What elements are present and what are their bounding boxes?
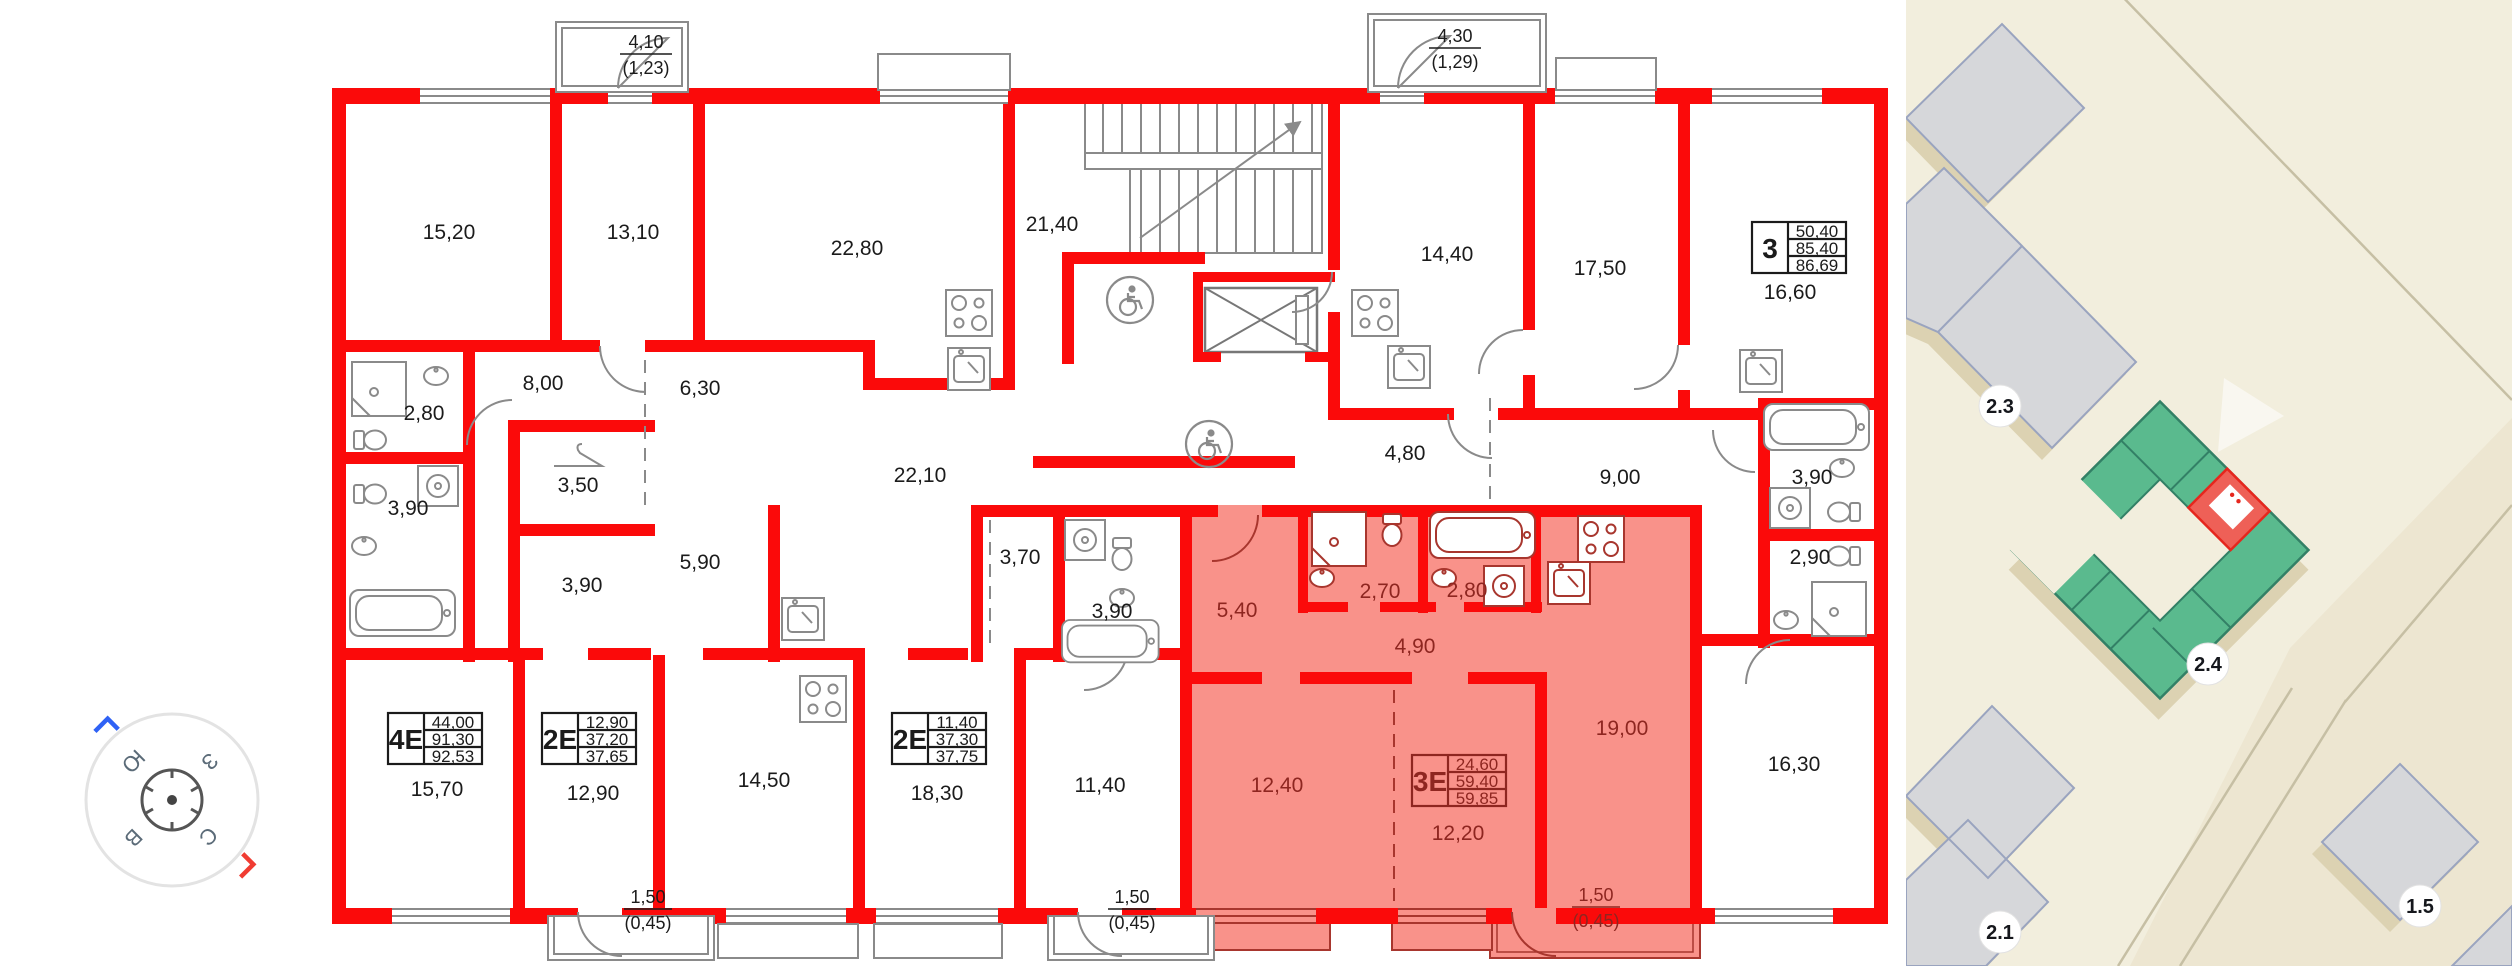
toilet-icon (1383, 514, 1402, 546)
sink-icon (1774, 611, 1798, 629)
kitchen-sink-icon (1388, 346, 1430, 388)
svg-text:86,69: 86,69 (1796, 256, 1839, 275)
svg-text:4,10: 4,10 (628, 32, 663, 52)
room-area-label: 3,90 (1792, 466, 1833, 489)
floor-plan: 15,20 13,10 22,80 21,40 14,40 17,50 16,6… (332, 14, 1888, 960)
room-area-label: 16,30 (1768, 753, 1821, 776)
room-area-label: 6,30 (680, 377, 721, 400)
room-area-label: 12,90 (567, 782, 620, 805)
sink-icon (424, 367, 448, 385)
room-area-label: 11,40 (1075, 774, 1126, 797)
bathtub-icon (1764, 404, 1869, 450)
shower-icon (1812, 582, 1866, 636)
kitchen-sink-icon (782, 598, 824, 640)
svg-text:2.1: 2.1 (1986, 922, 2014, 944)
room-area-label: 2,90 (1790, 546, 1831, 569)
apartment-info-4e[interactable]: 4Е 44,00 91,30 92,53 (388, 713, 482, 766)
map-badge-2-3[interactable]: 2.3 (1979, 385, 2021, 427)
apartment-info-2e-a[interactable]: 2Е 12,90 37,20 37,65 (542, 713, 636, 766)
elevator (1205, 288, 1317, 352)
svg-text:92,53: 92,53 (432, 747, 475, 766)
room-area-label: 9,00 (1600, 466, 1641, 489)
sink-icon (352, 537, 376, 555)
toilet-icon (354, 431, 386, 450)
room-area-label: 2,80 (1447, 579, 1488, 602)
bathtub-icon (350, 590, 455, 636)
floorplan-viewer: 15,20 13,10 22,80 21,40 14,40 17,50 16,6… (0, 0, 2512, 966)
svg-text:1,50: 1,50 (630, 887, 665, 907)
room-area-label: 14,50 (738, 769, 791, 792)
room-area-label: 2,80 (404, 402, 445, 425)
stove-icon (946, 290, 992, 336)
room-area-label: 17,50 (1574, 257, 1627, 280)
shower-icon (352, 362, 406, 416)
toilet-icon (1828, 547, 1860, 566)
toilet-icon (1828, 503, 1860, 522)
room-area-label: 13,10 (607, 221, 660, 244)
room-area-label: 22,10 (894, 464, 947, 487)
svg-text:59,85: 59,85 (1456, 789, 1499, 808)
room-area-label: 5,90 (680, 551, 721, 574)
washing-machine-icon (1770, 488, 1810, 528)
room-area-label: 4,90 (1395, 635, 1436, 658)
stove-icon (800, 676, 846, 722)
room-area-label: 3,50 (558, 474, 599, 497)
svg-text:(0,45): (0,45) (1108, 913, 1155, 933)
room-area-label: 3,90 (1092, 600, 1133, 623)
svg-text:3: 3 (1762, 233, 1778, 264)
sink-icon (1830, 459, 1854, 477)
room-area-label: 22,80 (831, 237, 884, 260)
room-area-label: 18,30 (911, 782, 964, 805)
kitchen-sink-icon (1740, 350, 1782, 392)
apartment-info-3e[interactable]: 3Е 24,60 59,40 59,85 (1412, 755, 1506, 808)
svg-text:2.3: 2.3 (1986, 396, 2014, 418)
kitchen-sink-icon (948, 348, 990, 390)
wheelchair-icon (1107, 277, 1153, 323)
svg-text:4Е: 4Е (389, 724, 423, 755)
room-area-label: 2,70 (1360, 580, 1401, 603)
room-area-label: 21,40 (1026, 213, 1079, 236)
svg-text:1.5: 1.5 (2406, 896, 2434, 918)
svg-text:(0,45): (0,45) (624, 913, 671, 933)
shower-icon (1312, 512, 1366, 566)
bathtub-icon (1430, 512, 1535, 558)
room-area-label: 3,90 (388, 497, 429, 520)
room-area-label: 12,40 (1251, 774, 1304, 797)
room-area-label: 19,00 (1596, 717, 1649, 740)
toilet-icon (354, 485, 386, 504)
map-badge-2-1[interactable]: 2.1 (1979, 911, 2021, 953)
room-area-label: 15,20 (423, 221, 476, 244)
room-area-label: 4,80 (1385, 442, 1426, 465)
room-area-label: 15,70 (411, 778, 464, 801)
stove-icon (1352, 290, 1398, 336)
svg-text:2Е: 2Е (543, 724, 577, 755)
svg-text:(1,23): (1,23) (622, 58, 669, 78)
svg-text:37,65: 37,65 (586, 747, 629, 766)
site-map: 2.3 2.4 2.1 1.5 (1896, 0, 2512, 966)
svg-text:2.4: 2.4 (2194, 654, 2223, 676)
room-area-label: 3,70 (1000, 546, 1041, 569)
room-area-label: 8,00 (523, 372, 564, 395)
washing-machine-icon (1065, 520, 1105, 560)
svg-text:4,30: 4,30 (1437, 26, 1472, 46)
room-area-label: 3,90 (562, 574, 603, 597)
staircase (1085, 97, 1322, 253)
svg-text:37,75: 37,75 (936, 747, 979, 766)
room-area-label: 5,40 (1217, 599, 1258, 622)
hanger-icon (554, 444, 602, 466)
svg-text:(1,29): (1,29) (1431, 52, 1478, 72)
bathtub-icon (1062, 620, 1159, 662)
room-area-label: 16,60 (1764, 281, 1817, 304)
room-area-label: 14,40 (1421, 243, 1474, 266)
svg-text:3Е: 3Е (1413, 766, 1447, 797)
apartment-info-3[interactable]: 3 50,40 85,40 86,69 (1752, 222, 1846, 275)
kitchen-sink-icon (1548, 562, 1590, 604)
apartment-info-2e-b[interactable]: 2Е 11,40 37,30 37,75 (892, 713, 986, 766)
washing-machine-icon (1484, 566, 1524, 606)
map-badge-2-4[interactable]: 2.4 (2187, 643, 2229, 685)
svg-text:1,50: 1,50 (1578, 885, 1613, 905)
svg-text:1,50: 1,50 (1114, 887, 1149, 907)
room-area-label: 12,20 (1432, 822, 1485, 845)
svg-text:(0,45): (0,45) (1572, 911, 1619, 931)
map-badge-1-5[interactable]: 1.5 (2399, 885, 2441, 927)
scene: 15,20 13,10 22,80 21,40 14,40 17,50 16,6… (0, 0, 2512, 966)
toilet-icon (1113, 538, 1132, 570)
sink-icon (1310, 569, 1334, 587)
compass: С Ю В З (56, 684, 288, 916)
stove-icon (1578, 516, 1624, 562)
svg-text:2Е: 2Е (893, 724, 927, 755)
